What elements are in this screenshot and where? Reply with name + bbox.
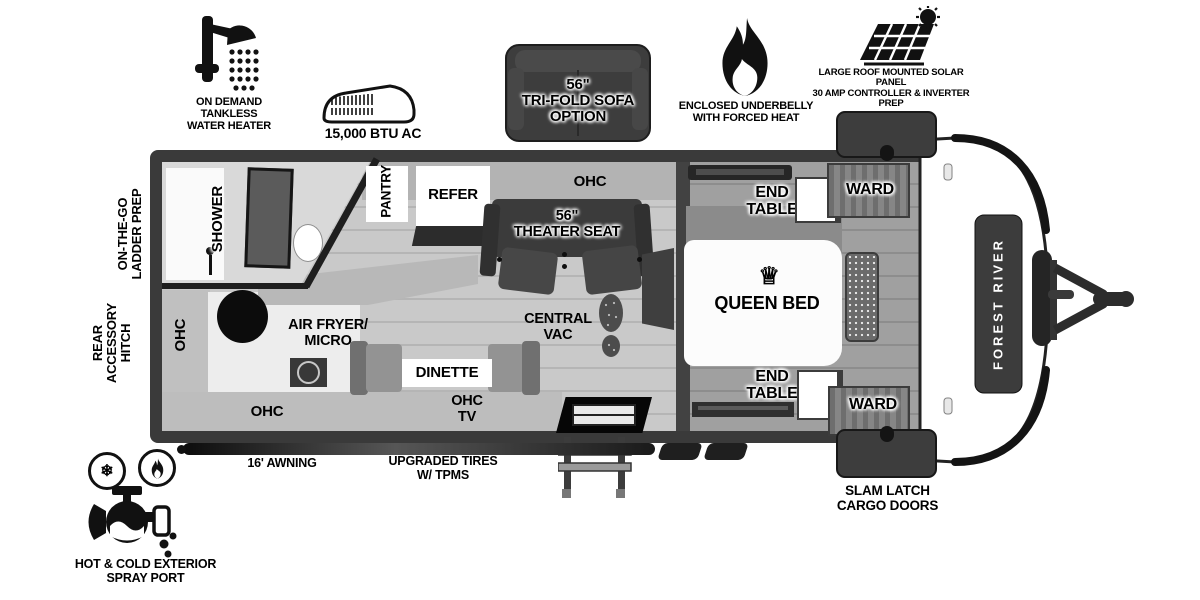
- pantry-label: PANTRY: [380, 155, 395, 227]
- queen-bed-label: QUEEN BED: [697, 294, 837, 313]
- upper-cabinet-band: [362, 162, 676, 200]
- seat-button: [497, 257, 502, 262]
- sofa-label: 56" TRI-FOLD SOFA OPTION: [508, 77, 648, 126]
- cargo-latch: [880, 145, 894, 161]
- footprint-icon: [594, 293, 628, 359]
- slam-latch-label: SLAM LATCH CARGO DOORS: [820, 484, 955, 513]
- solar-label: LARGE ROOF MOUNTED SOLAR PANEL 30 AMP CO…: [812, 68, 970, 109]
- seat-button: [562, 264, 567, 269]
- water-heater-label: ON DEMAND TANKLESS WATER HEATER: [163, 97, 295, 133]
- cooktop-burner: [297, 361, 320, 384]
- central-vac-label: CENTRAL VAC: [512, 312, 604, 343]
- dinette-table: DINETTE: [402, 359, 492, 387]
- propane-cover: [1032, 250, 1052, 346]
- rv-floorplan-diagram: ON DEMAND TANKLESS WATER HEATER 15,000 B…: [0, 0, 1200, 600]
- tri-fold-sofa-icon: 56" TRI-FOLD SOFA OPTION: [505, 44, 651, 142]
- ohc-top-label: OHC: [555, 174, 625, 190]
- shower-label: SHOWER: [210, 177, 226, 261]
- step-line: [574, 414, 634, 416]
- sink: [217, 290, 268, 343]
- tire: [657, 443, 703, 460]
- entry-step-inner: [572, 404, 636, 426]
- cargo-door-top: [836, 111, 937, 158]
- shower-head-icon: [190, 10, 274, 96]
- underbelly-label: ENCLOSED UNDERBELLY WITH FORCED HEAT: [672, 101, 820, 125]
- front-cap: [895, 118, 1155, 482]
- dinette-bench: [488, 344, 524, 392]
- vent-slot: [696, 169, 784, 175]
- dinette-label: DINETTE: [402, 365, 492, 381]
- theater-seat-label: 56" THEATER SEAT: [498, 209, 636, 240]
- ohc-left-label: OHC: [173, 301, 189, 369]
- tire: [703, 443, 749, 460]
- dinette-bench-back: [522, 341, 540, 395]
- cap-latch: [944, 398, 952, 414]
- entry-cabinet: [642, 248, 674, 330]
- flame-icon: [712, 16, 778, 98]
- theater-seat-cushion-right: [582, 245, 643, 295]
- ac-unit-icon: [316, 80, 422, 126]
- seat-button: [562, 252, 567, 257]
- pantry: PANTRY: [366, 166, 408, 222]
- dinette-bench: [366, 344, 402, 392]
- theater-seat-cushion-left: [498, 247, 559, 296]
- brand-label: FOREST RIVER: [975, 215, 1022, 393]
- bottom-cabinet-band: [162, 392, 562, 431]
- mat-line: [698, 406, 788, 410]
- ohc-tv-label: OHC TV: [438, 394, 496, 425]
- cargo-door-bottom: [836, 429, 937, 478]
- cooktop: [290, 358, 327, 387]
- cargo-latch: [880, 426, 894, 442]
- shower-door: [244, 167, 293, 269]
- seat-button: [637, 257, 642, 262]
- bedroom-mat: [692, 402, 794, 417]
- crown-icon: ♕: [754, 265, 784, 289]
- spray-port-faucet-icon: [80, 486, 180, 558]
- coupler-ball: [1118, 291, 1134, 307]
- refer-label: REFER: [416, 187, 490, 203]
- bed-headboard: [845, 252, 879, 342]
- spray-port-label: HOT & COLD EXTERIOR SPRAY PORT: [58, 558, 233, 585]
- ohc-bottom-label: OHC: [237, 404, 297, 420]
- snowflake-icon: ❄: [88, 452, 126, 490]
- ceiling-vent: [688, 165, 792, 180]
- jack-handle: [1048, 290, 1074, 299]
- solar-panel-icon: [850, 6, 942, 68]
- bath-wall: [162, 283, 308, 289]
- ac-label: 15,000 BTU AC: [308, 126, 438, 141]
- awning-label: 16' AWNING: [222, 457, 342, 471]
- awning-end: [177, 445, 186, 454]
- cap-latch: [944, 164, 952, 180]
- refrigerator: REFER: [416, 166, 490, 226]
- tires-label: UPGRADED TIRES W/ TPMS: [378, 455, 508, 482]
- rear-hitch-label: REAR ACCESSORY HITCH: [91, 268, 133, 418]
- flame-small-icon: [138, 449, 176, 487]
